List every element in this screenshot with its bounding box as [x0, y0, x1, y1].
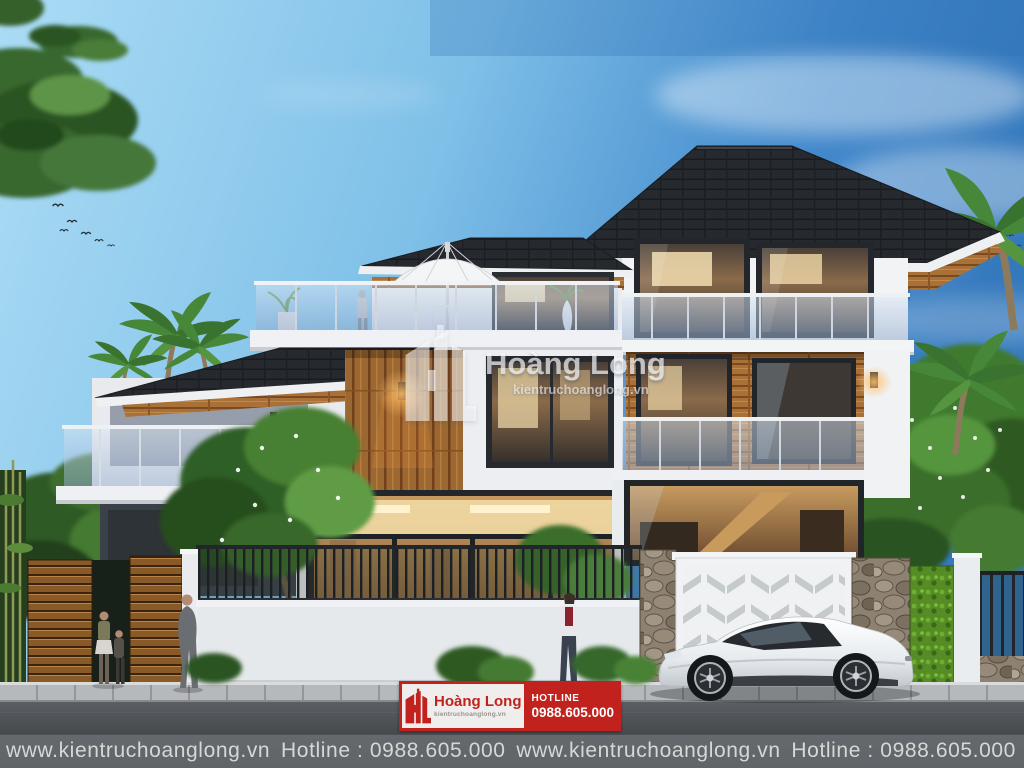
banner-website: kientruchoanglong.vn	[434, 711, 521, 718]
fence-railing	[196, 545, 642, 602]
banner-logo-panel: Hoàng Long kientruchoanglong.vn	[402, 684, 524, 728]
info-bar-hotline: Hotline : 0988.605.000	[281, 739, 506, 763]
metal-fence-right	[980, 571, 1024, 688]
banner-brand-name: Hoàng Long	[434, 694, 521, 710]
wood-panel-column	[345, 350, 463, 492]
second-floor-center	[463, 350, 623, 492]
architectural-rendering: Hoàng Long kientruchoanglong.vn Hoàng Lo…	[0, 0, 1024, 768]
banner-hotline-panel: HOTLINE 0988.605.000	[524, 684, 618, 728]
brand-banner: Hoàng Long kientruchoanglong.vn HOTLINE …	[399, 681, 621, 731]
white-pillar	[954, 556, 980, 690]
terrace-railing	[254, 281, 620, 332]
scene-canvas	[0, 0, 1024, 768]
banner-hotline-number: 0988.605.000	[531, 705, 618, 720]
hedge-panel	[910, 566, 954, 690]
info-bar-hotline: Hotline : 0988.605.000	[791, 739, 1016, 763]
third-floor-balcony	[614, 293, 910, 342]
info-bar-website: www.kientruchoanglong.vn	[6, 739, 270, 763]
wall-sconce-center	[372, 370, 434, 468]
hl-logo-icon	[405, 688, 431, 724]
third-floor-block	[606, 238, 914, 355]
info-bar-website: www.kientruchoanglong.vn	[516, 739, 780, 763]
wall-sconce-right	[856, 366, 892, 398]
info-bar: www.kientruchoanglong.vn Hotline : 0988.…	[0, 735, 1024, 768]
banner-hotline-label: HOTLINE	[531, 693, 618, 704]
